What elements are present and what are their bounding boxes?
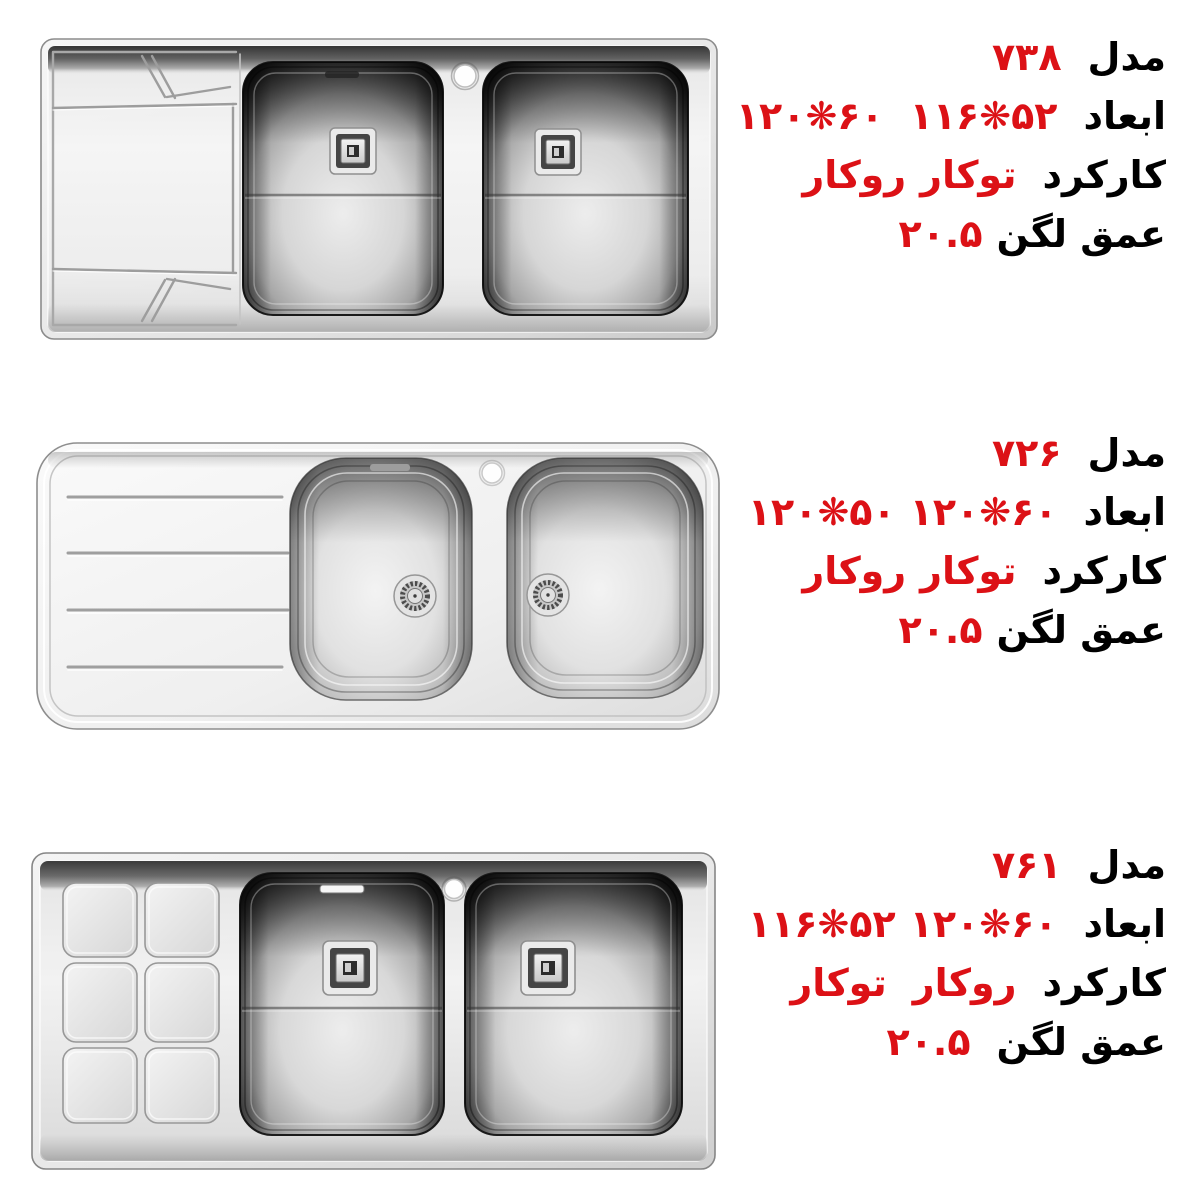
model-label: مدل xyxy=(1088,431,1166,475)
function-label: کارکرد xyxy=(1043,961,1166,1005)
function-value-1: توکار xyxy=(920,549,1016,593)
overflow-slot xyxy=(370,464,410,471)
tap-hole xyxy=(452,63,479,90)
depth-value: ۲۰.۵ xyxy=(899,601,983,660)
depth-line: عمق لگن۲۰.۵ xyxy=(748,601,1166,660)
dimensions-value-1: ۱۱۶❋۵۲ xyxy=(910,87,1058,146)
bowl-right xyxy=(465,873,682,1135)
function-value-1: روکار xyxy=(913,961,1017,1005)
dimensions-label: ابعاد xyxy=(1083,490,1166,534)
bowl-left xyxy=(240,873,444,1135)
tap-hole xyxy=(442,877,466,901)
drain-square-left xyxy=(323,941,377,995)
function-line: کارکردروکارتوکار xyxy=(748,954,1166,1013)
drain-square-left xyxy=(330,128,376,174)
depth-value: ۲۰.۵ xyxy=(899,205,983,264)
depth-line: عمق لگن۲۰.۵ xyxy=(736,205,1166,264)
drain-round-left xyxy=(394,575,436,617)
model-line: مدل۷۶۱ xyxy=(748,836,1166,895)
function-value-2: روکار xyxy=(802,549,906,593)
depth-line: عمق لگن۲۰.۵ xyxy=(748,1013,1166,1072)
model-value: ۷۶۱ xyxy=(992,836,1062,895)
spec-block-726: مدل۷۲۶ ابعاد۱۲۰❋۶۰۱۲۰❋۵۰ کارکردتوکارروکا… xyxy=(748,424,1166,660)
drain-square-right xyxy=(535,129,581,175)
function-line: کارکردتوکارروکار xyxy=(748,542,1166,601)
catalog-page: مدل۷۳۸ ابعاد۱۱۶❋۵۲۱۲۰❋۶۰ کارکردتوکارروکا… xyxy=(0,0,1200,1200)
model-label: مدل xyxy=(1088,843,1166,887)
bowl-left xyxy=(290,458,472,700)
dimensions-label: ابعاد xyxy=(1083,94,1166,138)
sink-photo-726 xyxy=(36,442,720,730)
sink-photo-761 xyxy=(31,852,716,1170)
dimensions-line: ابعاد۱۲۰❋۶۰۱۲۰❋۵۰ xyxy=(748,483,1166,542)
sink-photo-738 xyxy=(40,38,718,340)
spec-block-738: مدل۷۳۸ ابعاد۱۱۶❋۵۲۱۲۰❋۶۰ کارکردتوکارروکا… xyxy=(736,28,1166,264)
model-value: ۷۲۶ xyxy=(992,424,1062,483)
tap-hole xyxy=(480,461,505,486)
depth-label: عمق لگن xyxy=(997,608,1166,652)
function-label: کارکرد xyxy=(1043,153,1166,197)
dimensions-label: ابعاد xyxy=(1083,902,1166,946)
model-label: مدل xyxy=(1088,35,1166,79)
dimensions-value-2: ۱۱۶❋۵۲ xyxy=(748,895,896,954)
function-value-1: توکار xyxy=(920,153,1016,197)
depth-label: عمق لگن xyxy=(997,212,1166,256)
overflow-slot xyxy=(325,71,359,78)
dimensions-line: ابعاد۱۲۰❋۶۰۱۱۶❋۵۲ xyxy=(748,895,1166,954)
function-line: کارکردتوکارروکار xyxy=(736,146,1166,205)
function-value-2: توکار xyxy=(790,961,886,1005)
model-line: مدل۷۲۶ xyxy=(748,424,1166,483)
dimensions-value-1: ۱۲۰❋۶۰ xyxy=(910,483,1058,542)
depth-label: عمق لگن xyxy=(997,1020,1166,1064)
dimensions-value-2: ۱۲۰❋۵۰ xyxy=(748,483,896,542)
dimensions-line: ابعاد۱۱۶❋۵۲۱۲۰❋۶۰ xyxy=(736,87,1166,146)
model-value: ۷۳۸ xyxy=(992,28,1062,87)
depth-value: ۲۰.۵ xyxy=(887,1013,971,1072)
drain-round-right xyxy=(527,574,569,616)
bowl-right xyxy=(483,62,688,315)
dimensions-value-2: ۱۲۰❋۶۰ xyxy=(736,87,884,146)
bowl-right xyxy=(507,458,703,698)
drain-square-right xyxy=(521,941,575,995)
bowl-left xyxy=(243,62,443,315)
function-value-2: روکار xyxy=(802,153,906,197)
dimensions-value-1: ۱۲۰❋۶۰ xyxy=(910,895,1058,954)
spec-block-761: مدل۷۶۱ ابعاد۱۲۰❋۶۰۱۱۶❋۵۲ کارکردروکارتوکا… xyxy=(748,836,1166,1072)
overflow-slot xyxy=(320,885,364,893)
model-line: مدل۷۳۸ xyxy=(736,28,1166,87)
function-label: کارکرد xyxy=(1043,549,1166,593)
